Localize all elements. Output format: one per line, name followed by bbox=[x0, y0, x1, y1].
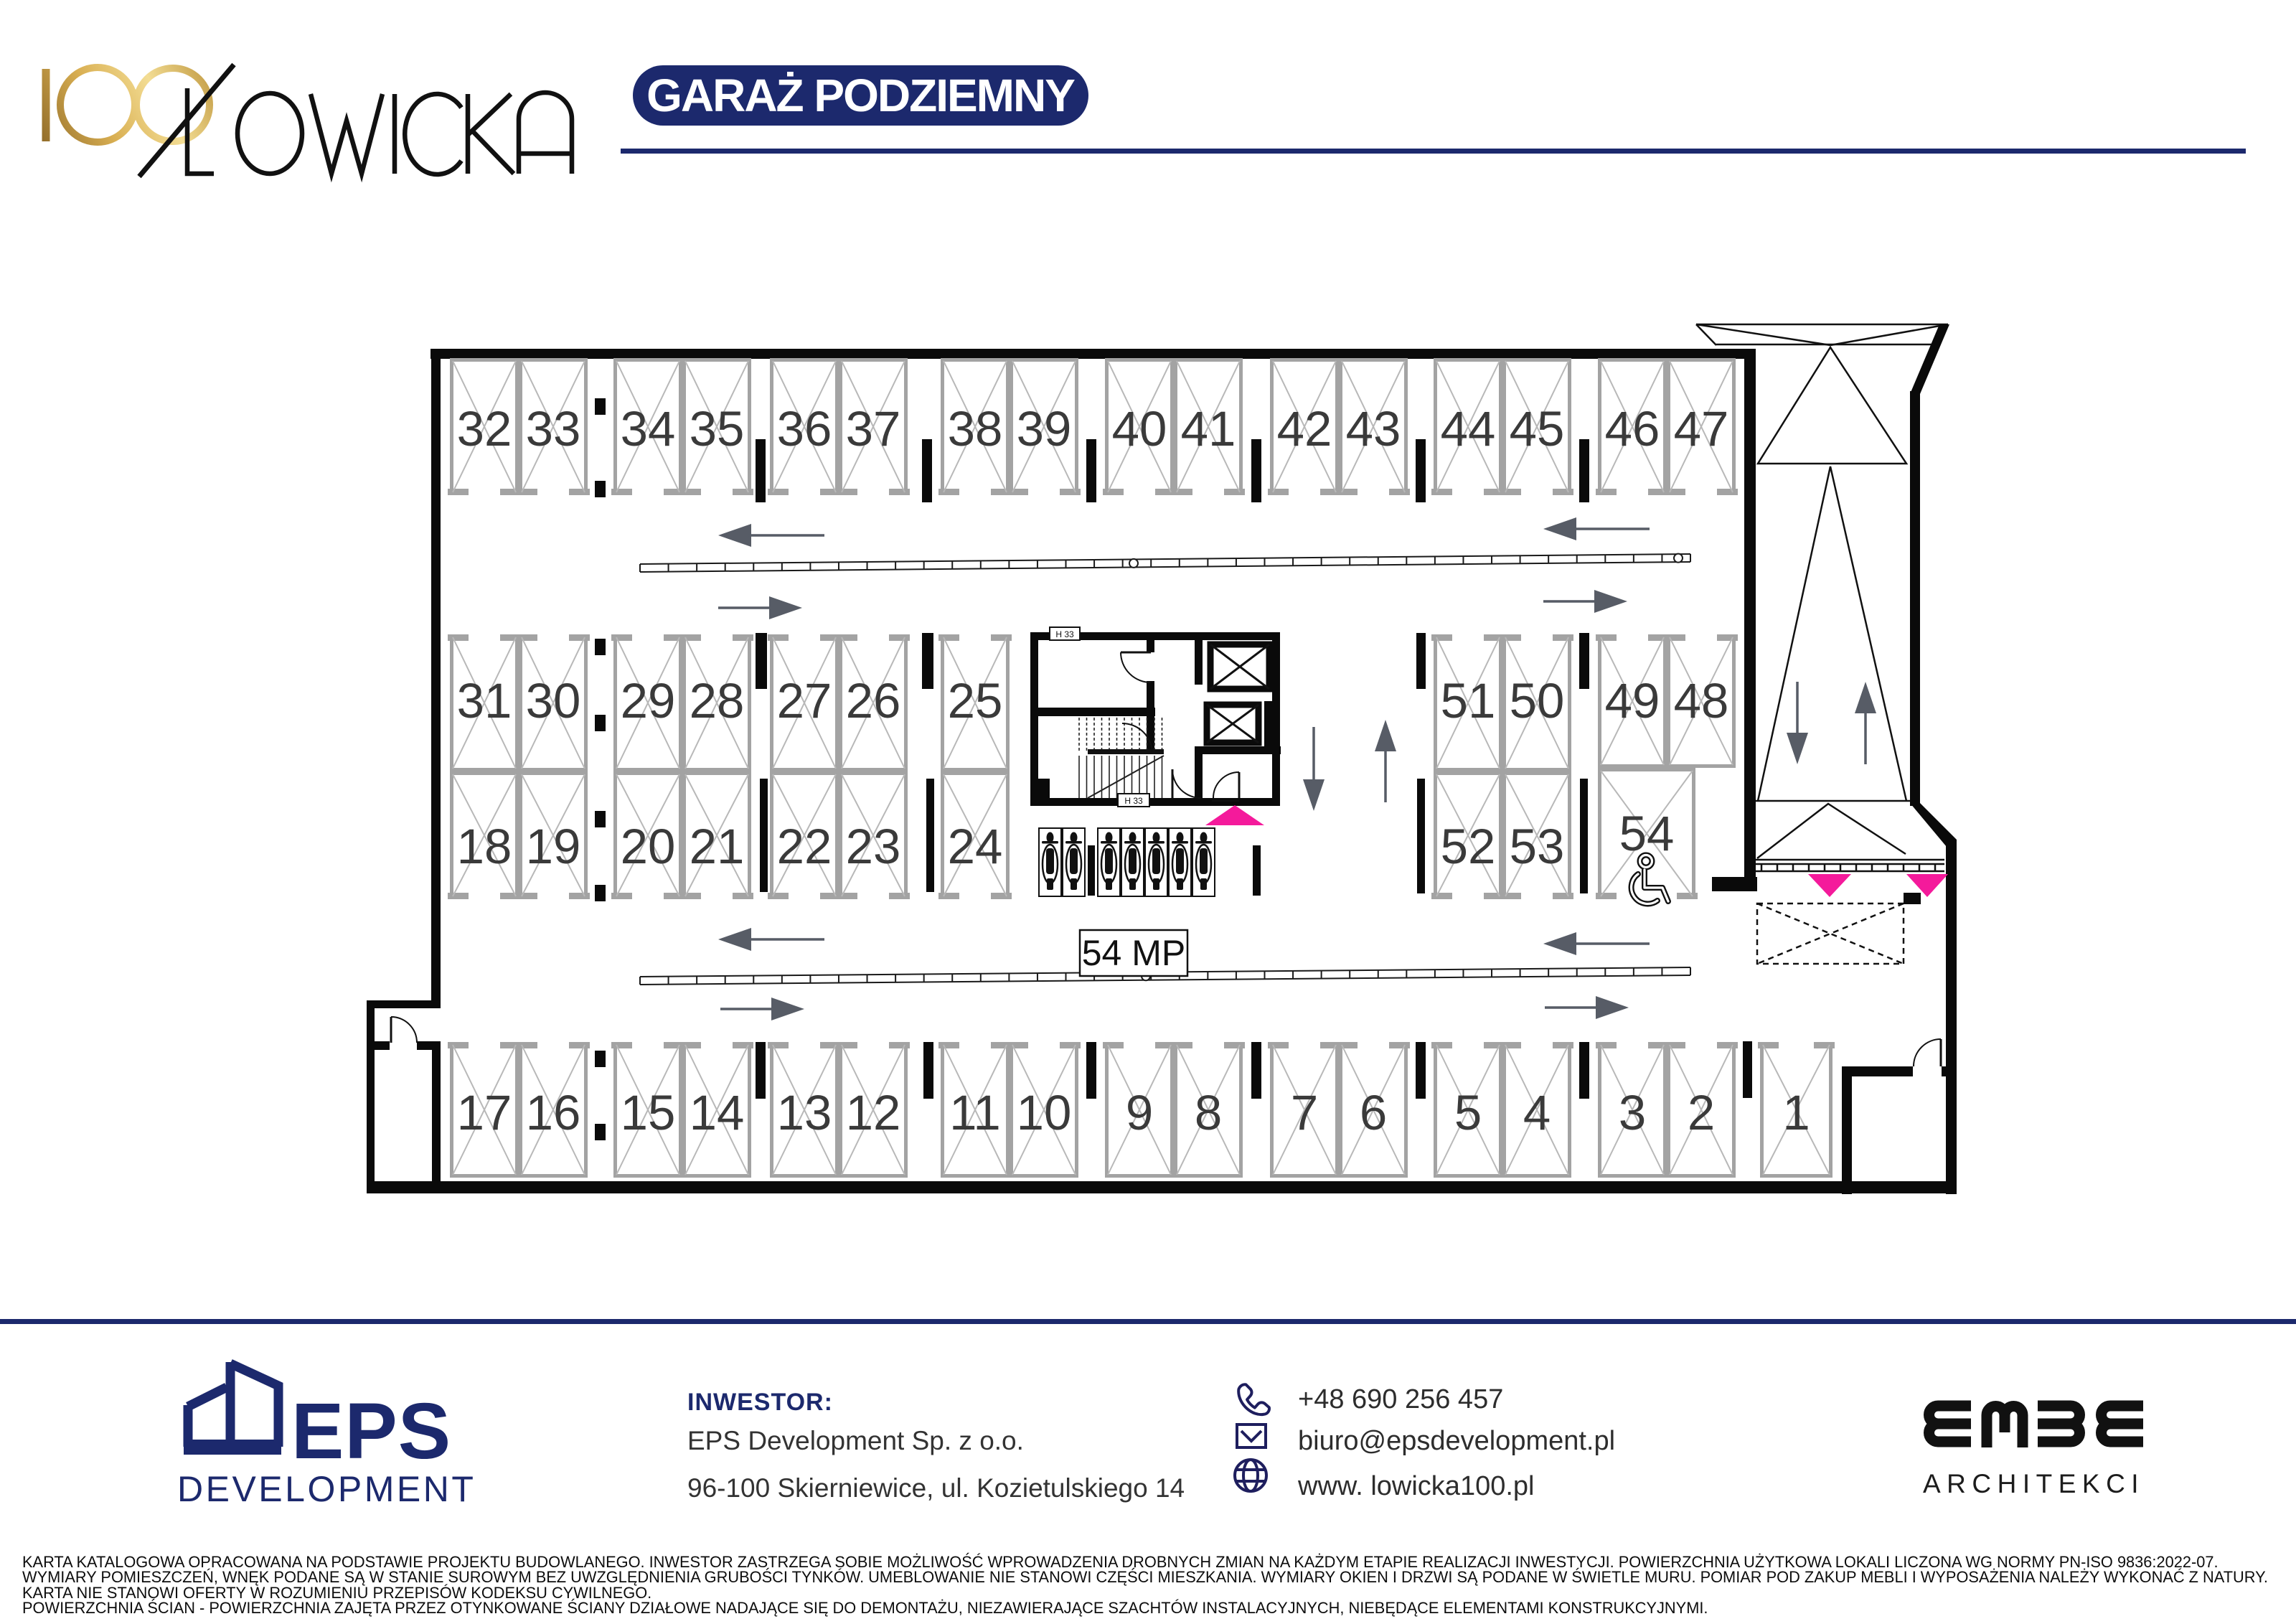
svg-text:15: 15 bbox=[621, 1085, 676, 1140]
svg-text:DEVELOPMENT: DEVELOPMENT bbox=[177, 1469, 476, 1509]
svg-text:18: 18 bbox=[457, 819, 512, 874]
svg-text:8: 8 bbox=[1195, 1085, 1222, 1140]
svg-text:45: 45 bbox=[1510, 401, 1565, 456]
svg-text:28: 28 bbox=[690, 673, 745, 728]
svg-text:EPS Development Sp. z o.o.: EPS Development Sp. z o.o. bbox=[687, 1426, 1024, 1455]
svg-text:43: 43 bbox=[1346, 401, 1401, 456]
svg-text:40: 40 bbox=[1112, 401, 1167, 456]
svg-text:EPS: EPS bbox=[291, 1387, 451, 1475]
svg-text:41: 41 bbox=[1181, 401, 1236, 456]
svg-text:42: 42 bbox=[1277, 401, 1332, 456]
svg-text:27: 27 bbox=[777, 673, 832, 728]
svg-text:29: 29 bbox=[621, 673, 676, 728]
svg-text:31: 31 bbox=[457, 673, 512, 728]
svg-text:35: 35 bbox=[690, 401, 745, 456]
svg-text:96-100 Skierniewice, ul. Kozie: 96-100 Skierniewice, ul. Kozietulskiego … bbox=[687, 1473, 1185, 1503]
svg-text:21: 21 bbox=[690, 819, 745, 874]
svg-text:53: 53 bbox=[1510, 819, 1565, 874]
svg-text:48: 48 bbox=[1674, 673, 1729, 728]
svg-text:38: 38 bbox=[948, 401, 1003, 456]
svg-text:30: 30 bbox=[526, 673, 581, 728]
svg-text:39: 39 bbox=[1017, 401, 1072, 456]
svg-text:5: 5 bbox=[1454, 1085, 1482, 1140]
svg-text:12: 12 bbox=[846, 1085, 901, 1140]
svg-text:19: 19 bbox=[526, 819, 581, 874]
svg-text:20: 20 bbox=[621, 819, 676, 874]
svg-text:44: 44 bbox=[1441, 401, 1496, 456]
svg-text:37: 37 bbox=[846, 401, 901, 456]
svg-text:2: 2 bbox=[1688, 1085, 1715, 1140]
svg-text:23: 23 bbox=[846, 819, 901, 874]
svg-text:49: 49 bbox=[1605, 673, 1660, 728]
svg-text:+48 690 256 457: +48 690 256 457 bbox=[1298, 1384, 1503, 1414]
svg-text:14: 14 bbox=[690, 1085, 745, 1140]
svg-text:10: 10 bbox=[1017, 1085, 1072, 1140]
svg-text:24: 24 bbox=[948, 819, 1003, 874]
svg-text:54 MP: 54 MP bbox=[1082, 933, 1186, 973]
svg-text:1: 1 bbox=[1782, 1085, 1810, 1140]
svg-text:32: 32 bbox=[457, 401, 512, 456]
svg-text:4: 4 bbox=[1523, 1085, 1551, 1140]
svg-text:H 33: H 33 bbox=[1055, 629, 1074, 639]
svg-text:biuro@epsdevelopment.pl: biuro@epsdevelopment.pl bbox=[1298, 1426, 1615, 1456]
svg-text:6: 6 bbox=[1360, 1085, 1387, 1140]
svg-text:46: 46 bbox=[1605, 401, 1660, 456]
svg-text:ARCHITEKCI: ARCHITEKCI bbox=[1923, 1469, 2145, 1498]
svg-text:51: 51 bbox=[1441, 673, 1496, 728]
svg-text:17: 17 bbox=[457, 1085, 512, 1140]
svg-text:11: 11 bbox=[949, 1085, 1001, 1140]
svg-text:47: 47 bbox=[1674, 401, 1729, 456]
svg-text:33: 33 bbox=[526, 401, 581, 456]
svg-text:13: 13 bbox=[777, 1085, 832, 1140]
svg-text:34: 34 bbox=[621, 401, 676, 456]
svg-text:36: 36 bbox=[777, 401, 832, 456]
svg-text:26: 26 bbox=[846, 673, 901, 728]
svg-text:3: 3 bbox=[1619, 1085, 1646, 1140]
svg-text:16: 16 bbox=[526, 1085, 581, 1140]
svg-text:22: 22 bbox=[777, 819, 832, 874]
svg-text:7: 7 bbox=[1291, 1085, 1318, 1140]
svg-text:25: 25 bbox=[948, 673, 1003, 728]
svg-text:POWIERZCHNIA ŚCIAN - POWIERZCH: POWIERZCHNIA ŚCIAN - POWIERZCHNIA ZAJĘTA… bbox=[22, 1599, 1708, 1617]
svg-text:52: 52 bbox=[1441, 819, 1496, 874]
svg-text:9: 9 bbox=[1126, 1085, 1153, 1140]
svg-text:www. lowicka100.pl: www. lowicka100.pl bbox=[1297, 1471, 1534, 1501]
svg-text:INWESTOR:: INWESTOR: bbox=[687, 1389, 833, 1416]
svg-text:GARAŻ PODZIEMNY: GARAŻ PODZIEMNY bbox=[646, 70, 1075, 121]
svg-text:50: 50 bbox=[1510, 673, 1565, 728]
svg-text:H 33: H 33 bbox=[1124, 796, 1143, 806]
